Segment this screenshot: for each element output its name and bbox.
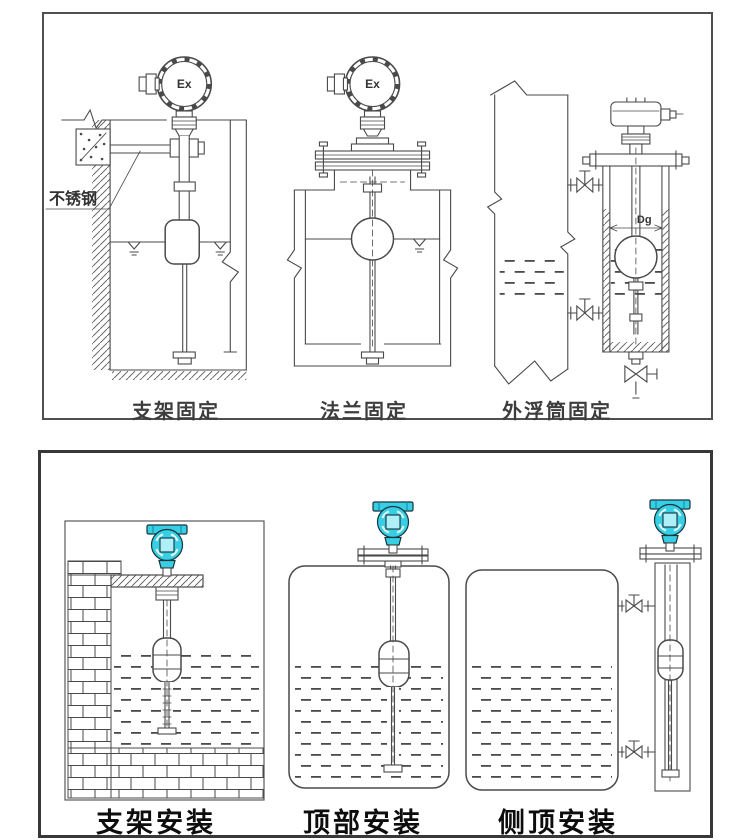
tank-walls <box>287 170 457 366</box>
caption-bracket-installation: 支架安装 <box>96 801 216 840</box>
chamber-transmitter-head <box>611 98 683 154</box>
sensor-assembly <box>351 170 393 364</box>
threaded-coupling <box>156 587 178 600</box>
stainless-steel-label: 不锈钢 <box>49 189 97 208</box>
isolation-valve-lower <box>568 299 603 320</box>
external-chamber-fixing-diagram: Dg <box>488 81 689 398</box>
installation-methods-panel: 支架安装 顶部安装 侧顶安装 <box>38 450 713 838</box>
ex-transmitter-head-icon <box>327 57 399 136</box>
level-mark-icon <box>414 239 426 252</box>
caption-side-top-installation: 侧顶安装 <box>498 801 618 840</box>
transmitter-head-icon <box>373 502 413 553</box>
flange-fixing-diagram: Ex <box>287 57 457 366</box>
level-mark-icon <box>128 242 140 255</box>
bracket-installation-diagram <box>65 521 264 800</box>
liquid-dashes <box>472 658 612 784</box>
connection-valve-lower <box>618 741 655 758</box>
pipe-coupling <box>174 182 195 191</box>
liquid-dashes <box>114 651 259 747</box>
side-top-installation-diagram <box>466 500 701 791</box>
top-installation-diagram <box>289 502 449 788</box>
float <box>379 641 409 687</box>
process-tank <box>488 81 575 384</box>
transmitter-head-icon <box>650 500 690 551</box>
level-mark-icon <box>214 242 226 255</box>
caption-bracket-fixing: 支架固定 <box>132 395 220 424</box>
fixing-methods-drawing: 不锈钢 Ex Ex <box>44 14 711 418</box>
chamber-internals <box>615 148 657 344</box>
tank-walls <box>194 120 246 370</box>
dg-label: Dg <box>637 214 652 226</box>
fixing-methods-panel: 不锈钢 Ex Ex <box>42 12 713 420</box>
caption-top-installation: 顶部安装 <box>303 801 423 840</box>
liquid-dashes <box>295 660 443 784</box>
float <box>165 220 199 264</box>
ex-transmitter-head-icon <box>139 57 211 136</box>
connection-valve-upper <box>618 595 655 612</box>
isolation-valve-upper <box>568 171 603 192</box>
caption-flange-fixing: 法兰固定 <box>320 395 408 424</box>
drain-valve <box>625 352 657 398</box>
ex-marking: Ex <box>177 77 192 91</box>
support-slab <box>111 575 203 587</box>
tank-liquid-dashes <box>500 254 564 302</box>
float <box>658 640 683 680</box>
bracket-fixing-diagram: 不锈钢 Ex <box>46 57 246 380</box>
page: 不锈钢 Ex Ex <box>0 0 750 840</box>
guide-rod <box>183 264 187 352</box>
sensor-assembly: Ex <box>139 57 211 364</box>
caption-external-chamber-fixing: 外浮筒固定 <box>502 395 612 424</box>
installation-methods-drawing <box>41 453 710 835</box>
brick-floor <box>68 748 264 798</box>
ground-hatch <box>112 371 246 380</box>
ex-marking: Ex <box>365 77 380 91</box>
